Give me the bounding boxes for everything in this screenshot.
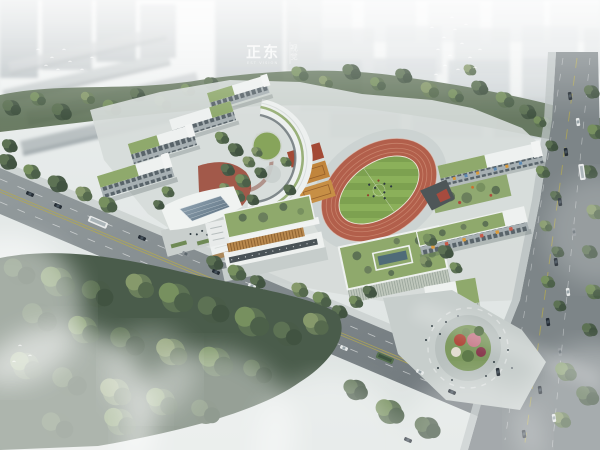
watermark-vertical: 视觉 xyxy=(289,43,298,62)
watermark-brand-en: EST VISION xyxy=(247,61,278,65)
rendering-canvas: 正东 EST VISION 视觉 xyxy=(0,0,600,450)
aerial-rendering: 正东 EST VISION 视觉 xyxy=(0,0,600,450)
watermark-brand: 正东 xyxy=(246,43,280,61)
